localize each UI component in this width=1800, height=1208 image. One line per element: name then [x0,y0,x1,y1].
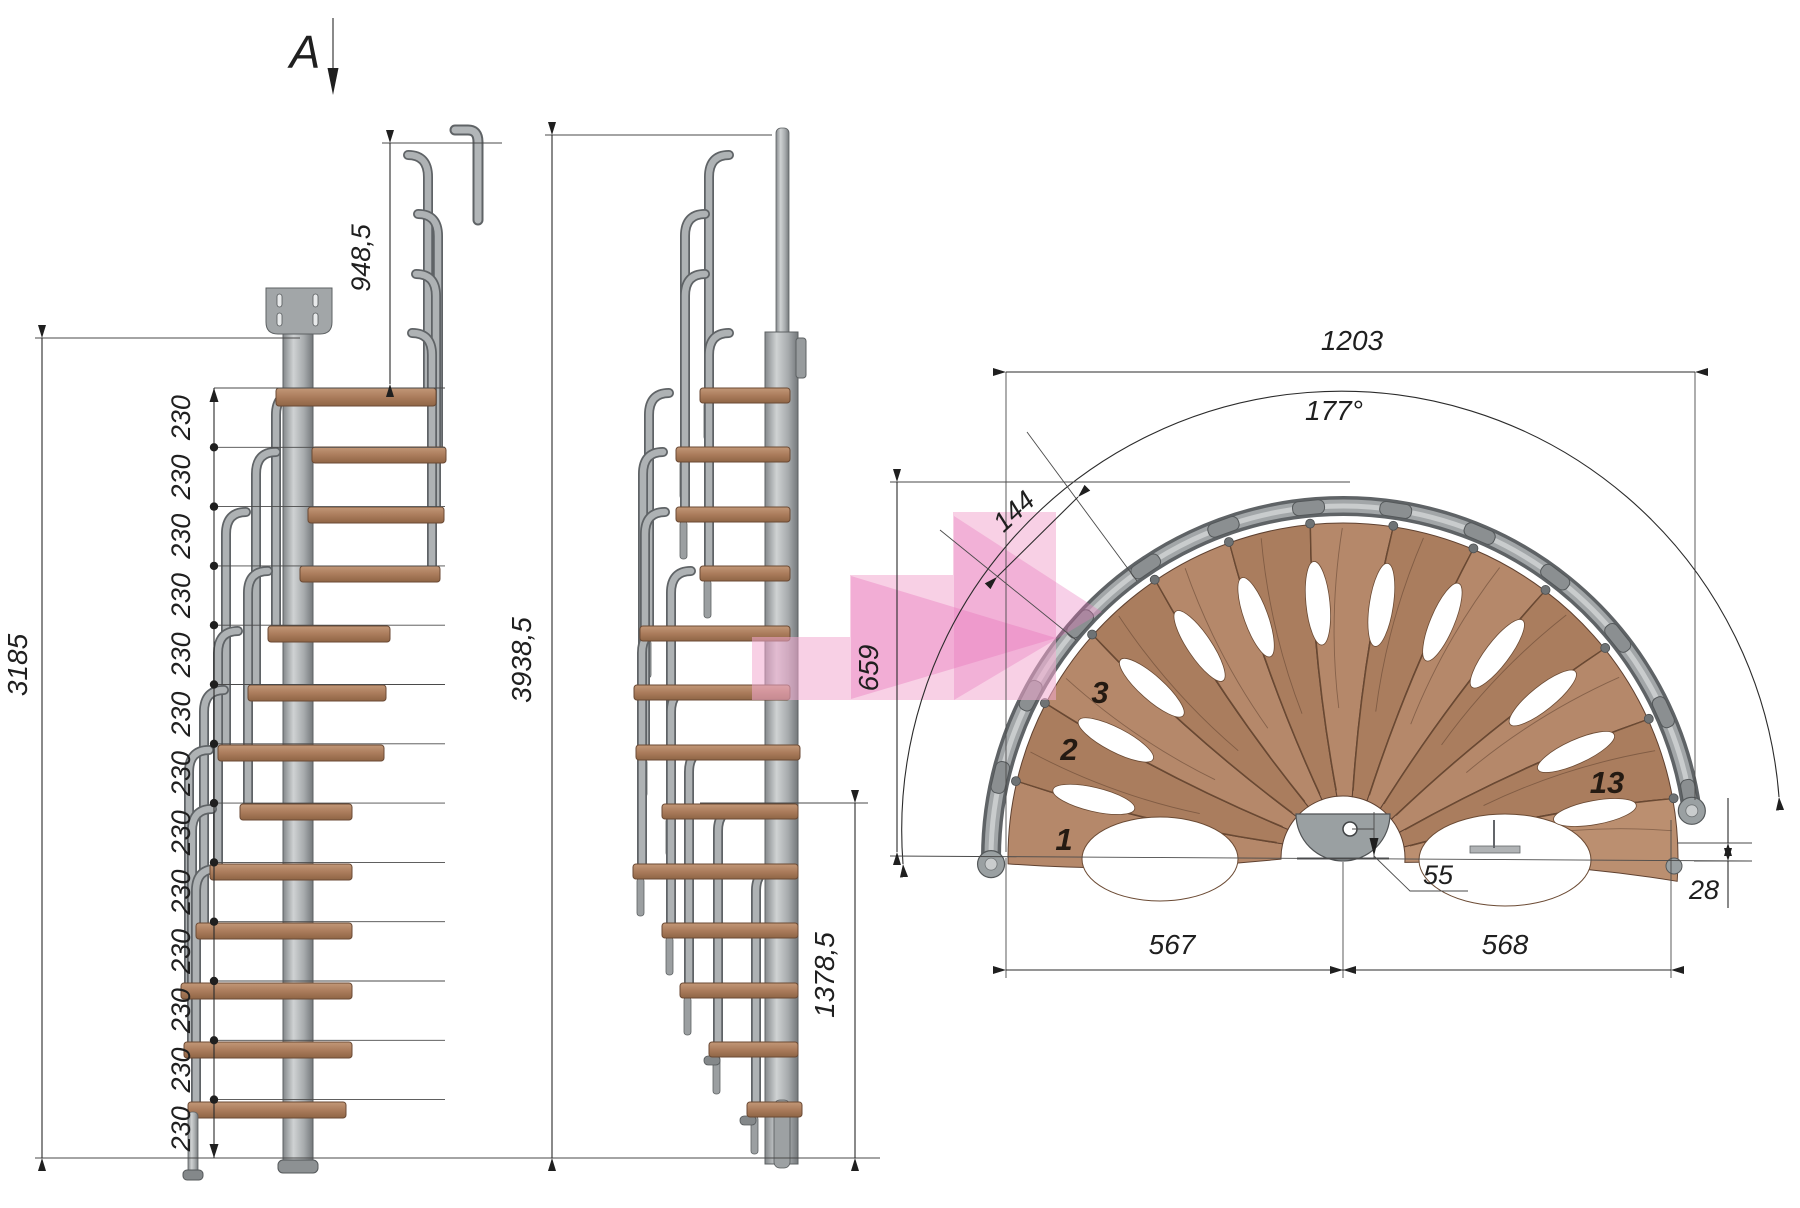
baluster-pin [1011,777,1020,786]
baluster-pin [1224,537,1233,546]
chain-dot [210,977,218,985]
tread-side-view [300,566,440,582]
riser-dimension-label: 230 [166,1047,196,1093]
baluster-pin [1601,643,1610,652]
technical-drawing-page: A 3185 230230230230230230230230230230230… [0,0,1800,1208]
chain-dot [210,680,218,688]
baluster-pin [1150,575,1159,584]
chain-dot [210,1036,218,1044]
chain-dot [210,502,218,510]
tread-side-view [676,507,790,522]
wall-bracket-edge [796,338,806,378]
dim-left-half: 567 [1149,929,1197,960]
dim-lower-flight: 1378,5 [809,932,840,1018]
chain-dot [210,1095,218,1103]
tread-side-view [676,447,790,462]
module-highlight-overlay [752,512,1102,700]
riser-dimension-label: 230 [166,454,196,500]
chain-dot [210,918,218,926]
handrail-end-cap-center [1686,805,1698,817]
top-handrail-post [776,128,789,343]
tread-side-view [268,626,390,642]
wall-bracket [266,288,332,334]
riser-dimension-label: 230 [166,514,196,560]
tread-side-view [276,388,436,406]
handrail-end-cap-center [985,858,997,870]
dim-right-half: 568 [1482,929,1529,960]
dim-plan-width: 1203 [1321,325,1384,356]
dim-center-offset: 55 [1423,860,1454,890]
baluster-plan [1292,499,1325,516]
tread-number-3: 3 [1091,675,1108,710]
dim-rotation-angle: 177° [1305,395,1363,426]
tread-side-view [196,923,352,939]
riser-dimension-label: 230 [166,632,196,678]
tread-number-1: 1 [1055,822,1072,857]
riser-dimension-label: 230 [166,870,196,916]
dim-edge-drop: 28 [1688,875,1719,905]
tread-side-view [680,983,798,998]
riser-dimension-label: 230 [166,573,196,619]
baluster-pin [1644,714,1653,723]
dim-bracket-height: 3185 [2,633,33,696]
tread-number-2: 2 [1059,732,1077,767]
chain-dot [210,443,218,451]
baluster-pin [1088,630,1097,639]
center-pole [283,300,313,1162]
tread-side-view [240,804,352,820]
dim-plan-depth: 659 [853,645,884,692]
riser-dimension-label: 230 [166,988,196,1034]
riser-dimension-label: 230 [166,692,196,738]
pole-foot [278,1160,318,1173]
baluster-pin [1669,794,1678,803]
riser-dimension-label: 230 [166,1106,196,1152]
tread-side-view [662,923,798,938]
tread-side-view [210,864,352,880]
chain-dot [210,858,218,866]
side-view-elevation [181,130,478,1180]
tread-support-stub [637,878,644,916]
center-post-plan [1296,814,1390,861]
tread-side-view [188,1102,346,1118]
tread-side-view [181,983,352,999]
baluster-pin [1306,519,1315,528]
tread-number-13: 13 [1590,765,1624,800]
handrail-cap-post [455,130,478,220]
riser-dimension-label: 230 [166,810,196,856]
section-marker-label: A [287,26,321,78]
chain-dot [210,562,218,570]
section-marker: A [287,18,339,95]
tread-side-view [709,1042,798,1057]
section-arrow-icon [328,68,339,95]
chain-dot [210,621,218,629]
dim-overall-height: 3938,5 [506,617,537,703]
tread-side-view [633,864,798,879]
bottom-scallop-cutout [1082,817,1238,901]
arrow-icon [210,1144,219,1158]
baluster-pin [1469,544,1478,553]
tread-foot-cap [183,1170,203,1180]
baluster-pin [1541,585,1550,594]
tread-support-stub [680,521,687,559]
staircase-drawing: A 3185 230230230230230230230230230230230… [0,0,1800,1208]
dim-handrail-height: 948,5 [346,223,376,292]
plan-view [978,499,1706,906]
tread-side-view [636,745,800,760]
riser-dimension-label: 230 [166,395,196,441]
tread-side-view [248,685,386,701]
handrail-left-view [183,130,478,1110]
baluster-pin [1389,521,1398,530]
tread-side-view [700,566,790,581]
tread-side-view [662,804,798,819]
tread-support-stub [684,997,691,1035]
chain-dot [210,740,218,748]
arrow-icon [210,388,219,402]
tread-side-view [747,1102,802,1117]
tread-support-stub [704,580,711,618]
tread-side-view [184,1042,352,1058]
tread-side-view [308,507,444,523]
riser-dimension-label: 230 [166,929,196,975]
tread-support-stub [666,937,673,975]
chain-dot [210,799,218,807]
tread-side-view [700,388,790,403]
tread-side-view [312,447,446,463]
tread-side-view [218,745,384,761]
riser-dimension-label: 230 [166,751,196,797]
